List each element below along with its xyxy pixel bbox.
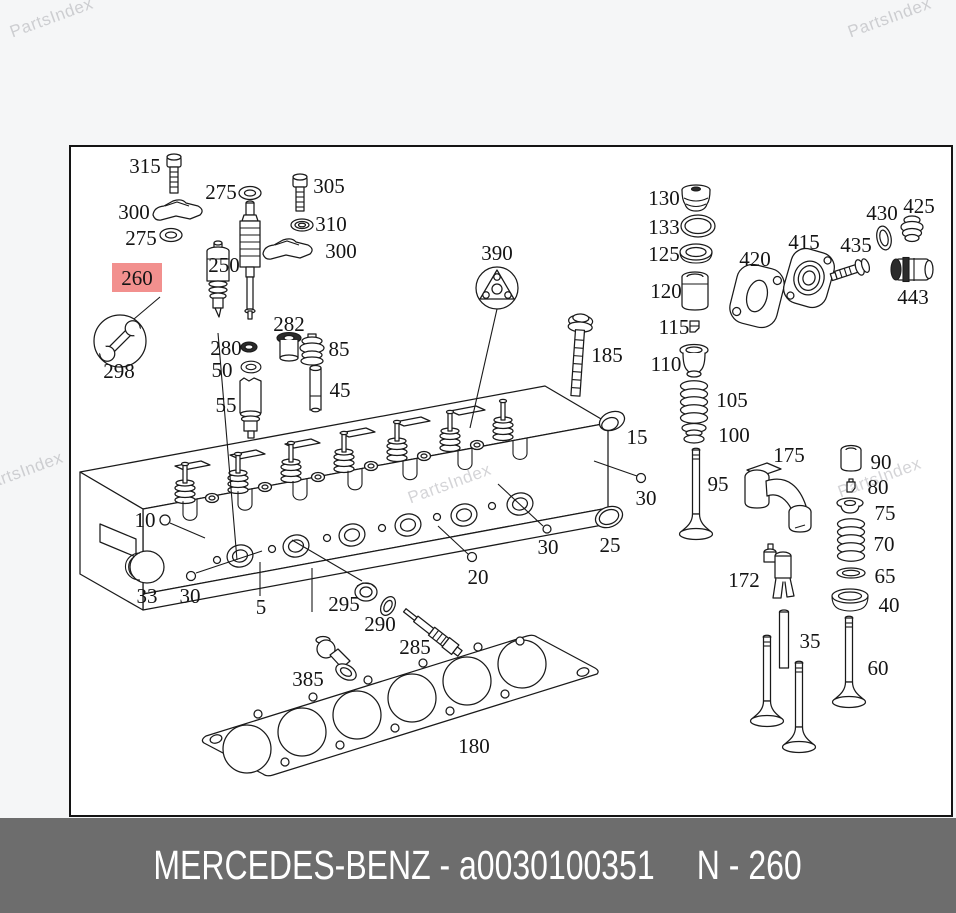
parts-catalog-page: PartsIndexPartsIndexPartsIndexPartsIndex…: [0, 0, 956, 913]
footer-reference: N - 260: [697, 845, 802, 886]
watermark-1: PartsIndex: [845, 0, 934, 42]
watermark-2: PartsIndex: [0, 448, 66, 497]
footer-brand-partnumber: MERCEDES-BENZ - a0030100351: [154, 845, 655, 886]
diagram-frame: [69, 145, 953, 817]
footer-bar: MERCEDES-BENZ - a0030100351 N - 260: [0, 818, 956, 913]
watermark-0: PartsIndex: [7, 0, 96, 42]
footer-text: MERCEDES-BENZ - a0030100351 N - 260: [154, 845, 802, 886]
